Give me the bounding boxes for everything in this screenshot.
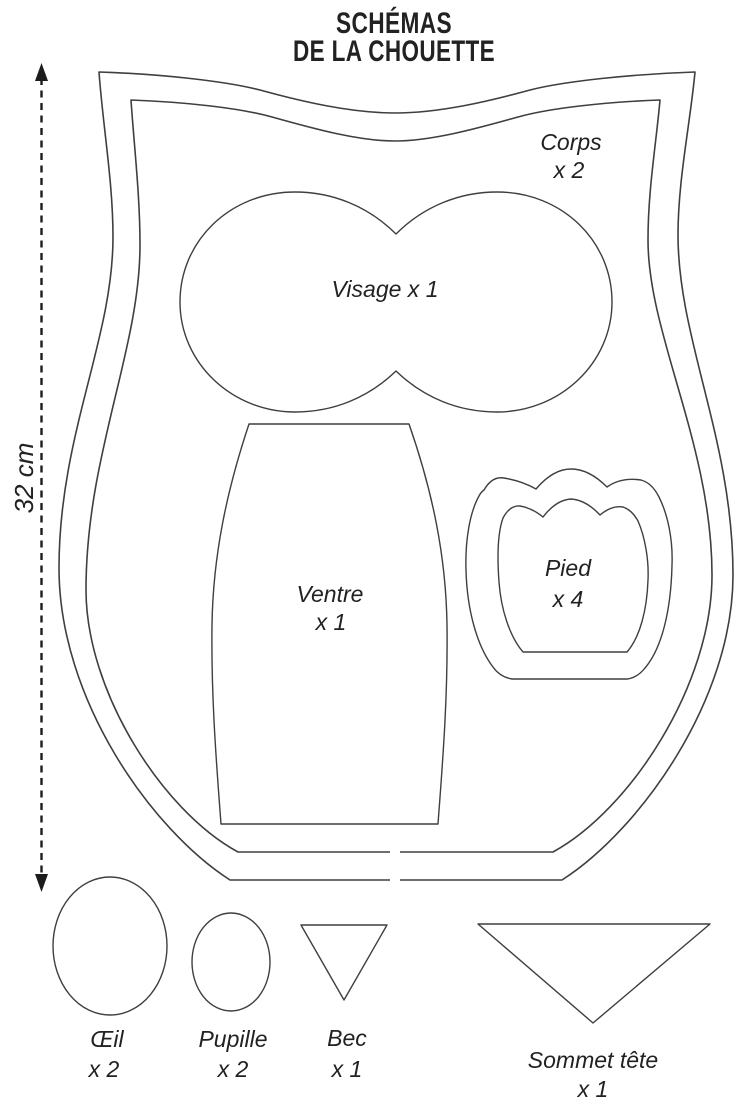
sommet-tete-qty: x 1 bbox=[577, 1076, 609, 1102]
measure-arrow-down-icon bbox=[35, 874, 48, 892]
bec-label: Bec bbox=[327, 1025, 367, 1051]
bec-qty: x 1 bbox=[331, 1056, 363, 1082]
visage-label: Visage x 1 bbox=[332, 276, 439, 302]
bottom-line-break bbox=[390, 844, 400, 888]
pattern-diagram-canvas: SCHÉMAS DE LA CHOUETTE 32 cm Corps x bbox=[0, 0, 736, 1107]
pied-label: Pied bbox=[545, 555, 592, 581]
corps-outer-outline bbox=[59, 72, 733, 880]
ventre-label: Ventre bbox=[297, 581, 364, 607]
oeil-shape bbox=[53, 877, 167, 1015]
owl-sewing-pattern-sheet: SCHÉMAS DE LA CHOUETTE 32 cm Corps x bbox=[0, 0, 736, 1107]
sommet-tete-label: Sommet tête bbox=[528, 1047, 658, 1073]
oeil-label: Œil bbox=[90, 1026, 124, 1052]
pupille-qty: x 2 bbox=[217, 1056, 249, 1082]
bec-shape bbox=[301, 925, 387, 1000]
measure-arrow-up-icon bbox=[35, 63, 48, 81]
corps-inner-outline bbox=[86, 100, 712, 852]
pupille-label: Pupille bbox=[198, 1026, 267, 1052]
corps-label: Corps bbox=[540, 129, 602, 155]
pupille-shape bbox=[192, 913, 270, 1011]
measure-label: 32 cm bbox=[9, 443, 39, 514]
visage-outline bbox=[180, 192, 612, 412]
page-title-line2: DE LA CHOUETTE bbox=[293, 35, 495, 68]
oeil-qty: x 2 bbox=[88, 1056, 120, 1082]
corps-qty: x 2 bbox=[553, 157, 585, 183]
ventre-qty: x 1 bbox=[315, 609, 347, 635]
pied-qty: x 4 bbox=[552, 586, 584, 612]
sommet-tete-shape bbox=[478, 924, 710, 1023]
